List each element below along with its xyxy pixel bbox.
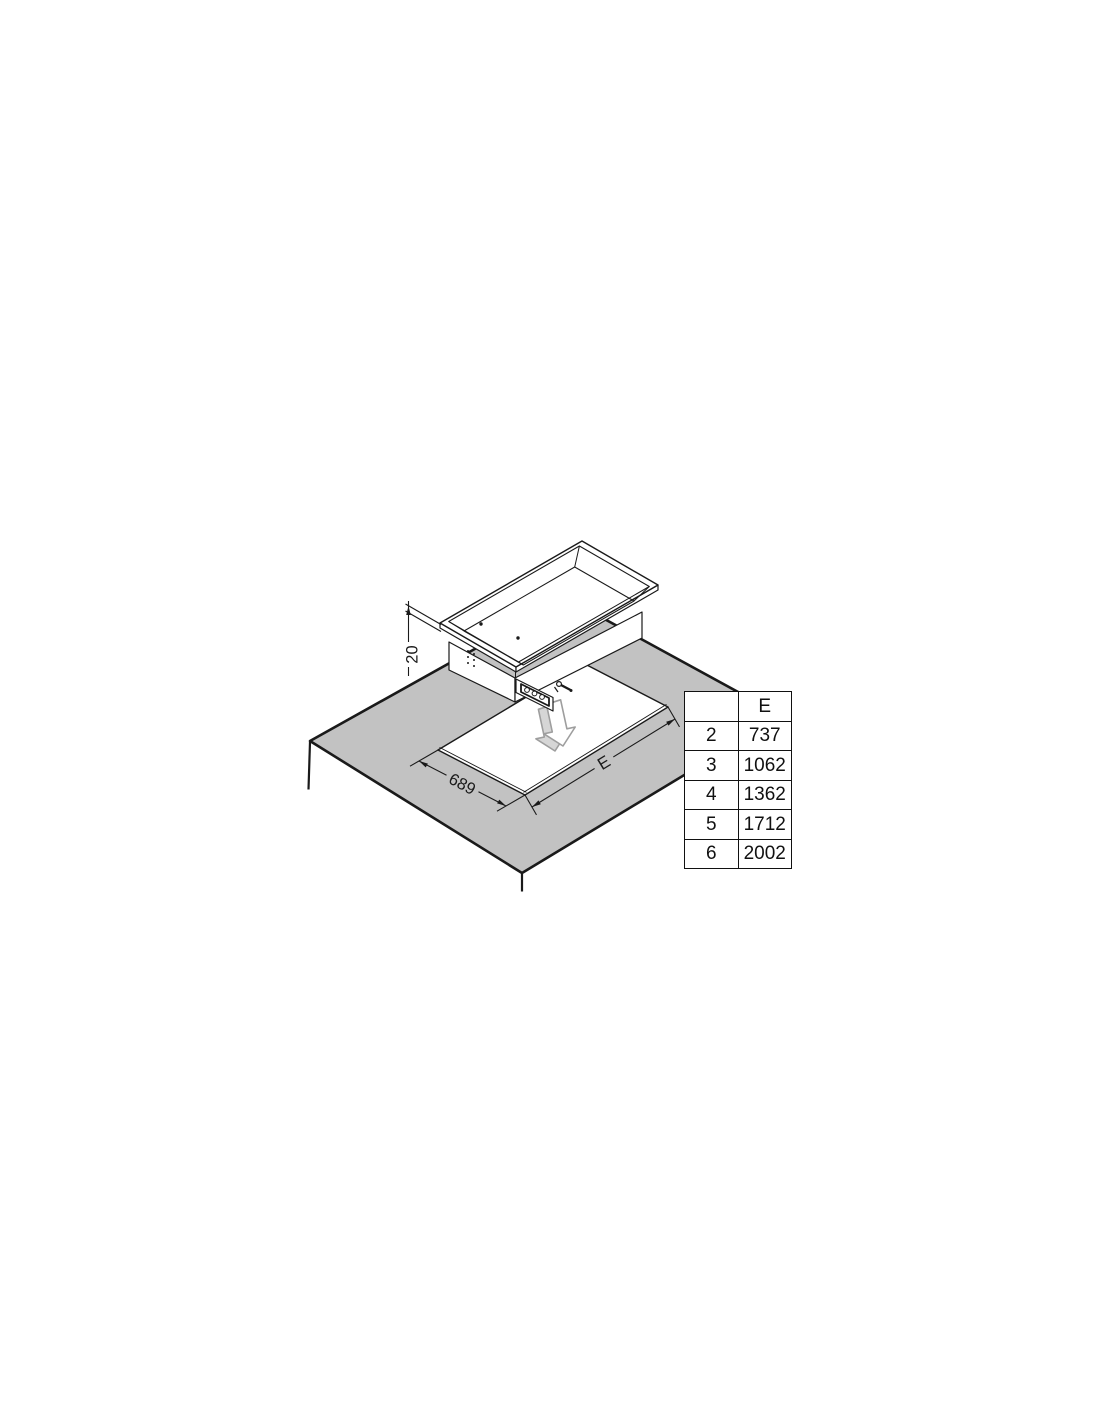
table-cell-e-value: 737: [738, 721, 792, 751]
size-table-row: 6 2002: [685, 839, 792, 869]
size-table: E 2 737 3 1062 4 1362 5 1712 6 2002: [684, 691, 792, 869]
size-table-row: 4 1362: [685, 780, 792, 810]
control-knob: [525, 688, 530, 693]
dimension-20-label: 20: [404, 645, 422, 663]
table-cell-e-value: 1362: [738, 780, 792, 810]
dimension-flange-thickness: 20: [403, 601, 441, 676]
size-table-row: 3 1062: [685, 751, 792, 781]
control-knob: [540, 695, 545, 700]
size-table-row: 2 737: [685, 721, 792, 751]
table-cell-e-value: 2002: [738, 839, 792, 869]
table-cell-size: 6: [685, 839, 739, 869]
table-cell-e-value: 1062: [738, 751, 792, 781]
countertop-left-leg: [309, 742, 311, 790]
basin-drain-dot: [479, 622, 482, 625]
size-table-row: 5 1712: [685, 810, 792, 840]
table-cell-e-value: 1712: [738, 810, 792, 840]
control-knob: [532, 691, 537, 696]
installation-diagram-page: 689 E: [0, 0, 1100, 1422]
size-table-header-row: E: [685, 692, 792, 722]
table-cell-size: 4: [685, 780, 739, 810]
table-cell-size: 5: [685, 810, 739, 840]
table-cell-size: 3: [685, 751, 739, 781]
table-header-cell: E: [738, 692, 792, 722]
installation-drawing: 689 E: [0, 0, 1100, 1422]
basin-drain-dot: [516, 636, 519, 639]
table-cell-size: 2: [685, 721, 739, 751]
table-header-cell: [685, 692, 739, 722]
